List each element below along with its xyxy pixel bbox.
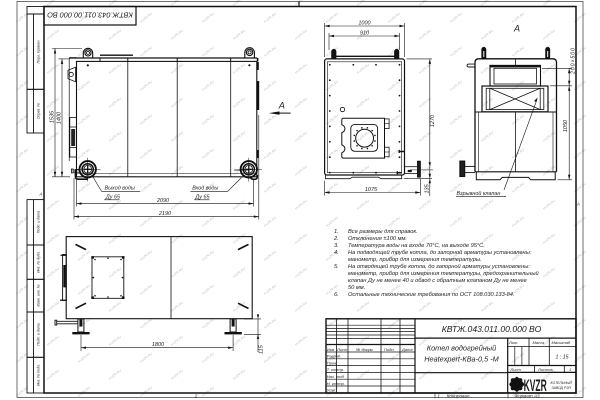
svg-text:Масштаб: Масштаб — [552, 340, 571, 345]
svg-text:Подп.: Подп. — [384, 347, 395, 352]
svg-text:манометр, прибор для измерения: манометр, прибор для измерения температу… — [348, 257, 482, 263]
svg-text:Heatexpert-КВа-0,5 -М: Heatexpert-КВа-0,5 -М — [424, 355, 499, 364]
svg-text:Т. контр.: Т. контр. — [327, 367, 344, 372]
svg-text:115: 115 — [259, 344, 265, 354]
svg-text:Дата: Дата — [401, 347, 413, 352]
svg-text:1: 1 — [569, 367, 571, 372]
svg-text:Пров.: Пров. — [327, 360, 338, 365]
svg-text:Ду 65: Ду 65 — [105, 194, 121, 200]
svg-text:манометр, прибор для измерения: манометр, прибор для измерения температу… — [348, 270, 540, 277]
svg-text:6.: 6. — [334, 292, 339, 298]
svg-text:На подводящей трубе котла, до: На подводящей трубе котла, до запорной а… — [348, 249, 532, 256]
svg-text:200×500: 200×500 — [571, 48, 577, 75]
svg-text:Справ. №: Справ. № — [37, 103, 41, 119]
svg-text:Все размеры для справок.: Все размеры для справок. — [348, 229, 418, 235]
svg-text:Н. контр.: Н. контр. — [327, 381, 345, 386]
svg-text:Инв. № дубл.: Инв. № дубл. — [37, 251, 41, 273]
svg-text:На отводящей трубе котла, до з: На отводящей трубе котла, до запорной ар… — [348, 263, 530, 270]
svg-text:135: 135 — [424, 183, 430, 193]
svg-text:Копировал: Копировал — [447, 393, 470, 398]
svg-text:Инв. № подл.: Инв. № подл. — [37, 364, 41, 386]
svg-text:Формат А3: Формат А3 — [514, 393, 540, 398]
svg-text:Взрывной клапан: Взрывной клапан — [457, 190, 501, 197]
svg-text:5.: 5. — [334, 264, 339, 270]
svg-text:Подп. и дата: Подп. и дата — [37, 211, 41, 234]
svg-text:Подп. и дата: Подп. и дата — [37, 323, 41, 346]
svg-text:1: 1 — [437, 393, 440, 398]
svg-text:2: 2 — [194, 393, 198, 398]
svg-text:1.: 1. — [334, 229, 339, 235]
svg-text:клапан Ду не менее 40 и обвод: клапан Ду не менее 40 и обвод с обратным… — [348, 278, 527, 284]
svg-text:4.: 4. — [334, 250, 339, 256]
svg-text:КВТЖ.043.011.00.000 ВО: КВТЖ.043.011.00.000 ВО — [47, 10, 133, 19]
svg-text:Изм: Изм — [327, 347, 335, 352]
svg-text:Масса: Масса — [533, 340, 546, 345]
svg-text:Выход воды: Выход воды — [105, 186, 135, 192]
svg-text:Нач. отд.: Нач. отд. — [327, 374, 345, 379]
svg-text:Вход воды: Вход воды — [192, 186, 218, 192]
svg-text:КВТЖ.043.011.00.000 ВО: КВТЖ.043.011.00.000 ВО — [442, 324, 542, 334]
svg-text:Перв. примен.: Перв. примен. — [37, 40, 41, 64]
svg-text:2090: 2090 — [156, 198, 170, 204]
svg-text:Котел водогрейный: Котел водогрейный — [427, 344, 496, 353]
svg-text:1000: 1000 — [358, 21, 371, 27]
svg-text:1800: 1800 — [152, 342, 165, 348]
svg-text:910: 910 — [360, 31, 370, 37]
svg-text:50 мм.: 50 мм. — [348, 285, 365, 291]
svg-text:1 : 15: 1 : 15 — [556, 355, 569, 361]
svg-text:А: А — [278, 100, 285, 110]
svg-text:KVZR: KVZR — [524, 377, 547, 395]
svg-text:ЗАВОД РЭП: ЗАВОД РЭП — [552, 386, 572, 390]
svg-text:Взам. инв. №: Взам. инв. № — [37, 284, 41, 306]
svg-text:Лист: Лист — [510, 367, 522, 372]
svg-text:Отклонения ±100 мм.: Отклонения ±100 мм. — [348, 236, 407, 242]
svg-text:Температура воды на входе 70°С: Температура воды на входе 70°С, на выход… — [348, 243, 485, 249]
svg-text:Остальные технические требован: Остальные технические требования по ОСТ … — [348, 292, 515, 298]
svg-text:Утв.: Утв. — [327, 388, 336, 393]
svg-text:1535: 1535 — [50, 110, 56, 123]
svg-text:№ докум.: № докум. — [356, 347, 374, 352]
svg-text:1075: 1075 — [365, 187, 378, 193]
svg-text:2190: 2190 — [158, 211, 172, 217]
svg-text:А: А — [39, 192, 43, 197]
svg-text:А: А — [513, 23, 520, 33]
svg-text:Листов: Листов — [537, 367, 553, 372]
svg-text:Ду 65: Ду 65 — [194, 194, 210, 200]
svg-text:1050: 1050 — [563, 119, 569, 132]
svg-text:Лист: Лист — [336, 347, 348, 352]
svg-text:1400: 1400 — [57, 111, 63, 124]
svg-text:А: А — [576, 202, 580, 207]
svg-text:2.: 2. — [333, 236, 339, 242]
svg-text:1270: 1270 — [430, 114, 436, 127]
svg-text:3.: 3. — [334, 243, 339, 249]
svg-text:Разраб.: Разраб. — [327, 354, 341, 359]
svg-text:КОТЕЛЬНЫЙ: КОТЕЛЬНЫЙ — [551, 381, 573, 385]
svg-text:Лит.: Лит. — [508, 340, 518, 345]
